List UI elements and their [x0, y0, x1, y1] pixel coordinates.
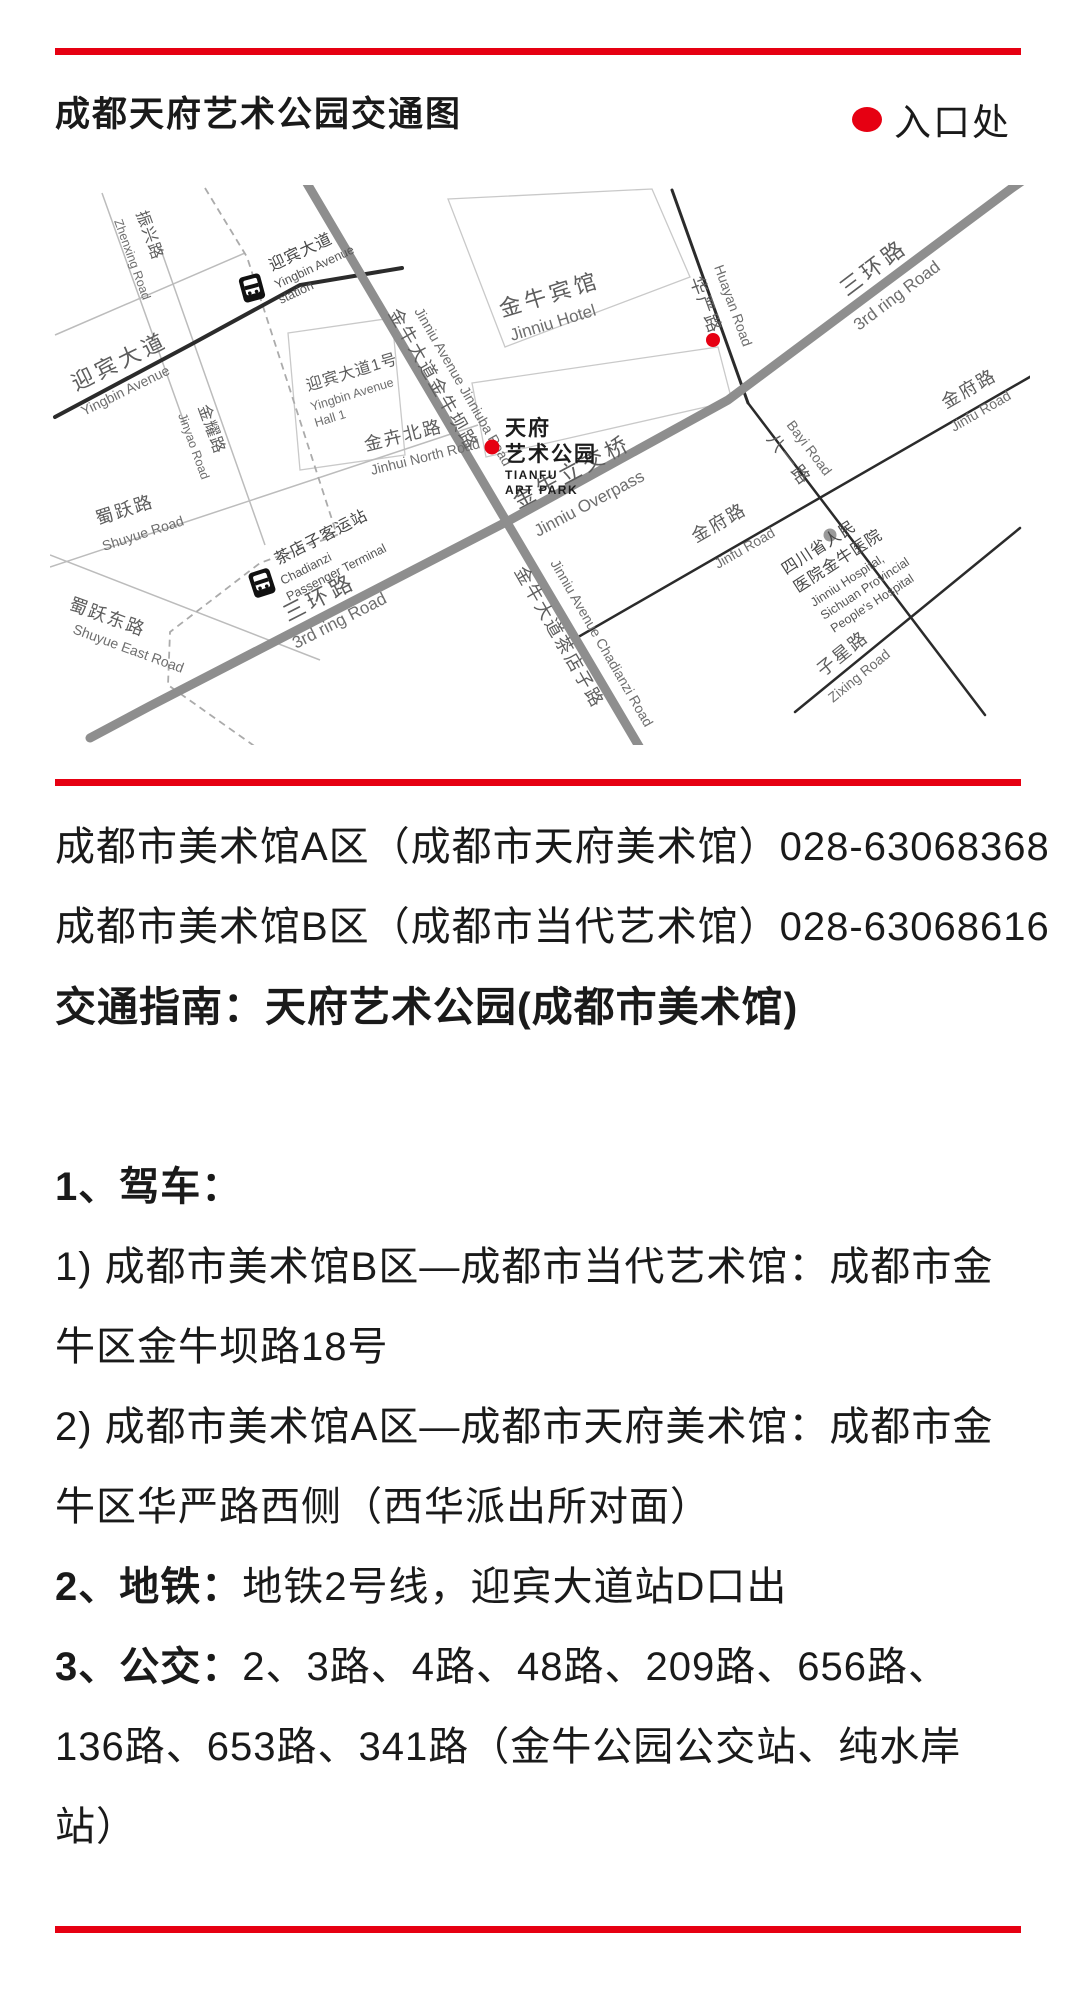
road-label-jinfu-low-cn: 金府路: [688, 499, 750, 546]
contact-line-b: 成都市美术馆B区（成都市当代艺术馆）028-63068616: [55, 887, 1030, 967]
entrance-dot-icon: [852, 107, 882, 132]
guide-drive-label: 1、驾车：: [55, 1147, 1030, 1227]
legend-entrance: 入口处: [852, 92, 1011, 146]
guide-drive-2b: 牛区华严路西侧（西华派出所对面）: [55, 1467, 1030, 1547]
transit-map: 三环路 3rd ring Road 三环路 3rd ring Road 金牛立交…: [50, 185, 1030, 745]
divider-top: [55, 48, 1021, 55]
guide-drive-1b: 牛区金牛坝路18号: [55, 1307, 1030, 1387]
contact-line-a: 成都市美术馆A区（成都市天府美术馆）028-63068368: [55, 807, 1030, 887]
divider-bottom: [55, 1926, 1021, 1933]
info-text: 成都市美术馆A区（成都市天府美术馆）028-63068368 成都市美术馆B区（…: [55, 807, 1030, 1867]
guide-drive-1a: 1) 成都市美术馆B区—成都市当代艺术馆：成都市金: [55, 1227, 1030, 1307]
guide-drive-2a: 2) 成都市美术馆A区—成都市天府美术馆：成都市金: [55, 1387, 1030, 1467]
guide-metro: 2、地铁：地铁2号线，迎宾大道站D口出: [55, 1547, 1030, 1627]
page: 成都天府艺术公园交通图 入口处 三环路 3rd ring Road 三环路 3r…: [0, 0, 1080, 2015]
guide-heading: 交通指南：天府艺术公园(成都市美术馆): [55, 967, 1030, 1047]
bus-terminal-icon: [248, 567, 277, 599]
page-title: 成都天府艺术公园交通图: [55, 86, 462, 137]
divider-mid: [55, 779, 1021, 786]
park-label-en-2: ART PARK: [505, 483, 578, 497]
entrance-dot-huayan: [706, 333, 720, 347]
spacer: [55, 1047, 1030, 1147]
guide-bus-2: 136路、653路、341路（金牛公园公交站、纯水岸: [55, 1707, 1030, 1787]
metro-station-icon: [238, 273, 266, 304]
park-label-en-1: TIANFU: [505, 468, 558, 482]
legend-label: 入口处: [894, 92, 1011, 146]
parcel-tianfu-art-park: [472, 347, 732, 457]
guide-bus-1: 3、公交：2、3路、4路、48路、209路、656路、: [55, 1627, 1030, 1707]
park-label-cn-2: 艺术公园: [505, 442, 597, 466]
park-label-cn-1: 天府: [505, 416, 551, 440]
guide-bus-3: 站）: [55, 1787, 1030, 1867]
entrance-dot-park: [485, 440, 500, 455]
